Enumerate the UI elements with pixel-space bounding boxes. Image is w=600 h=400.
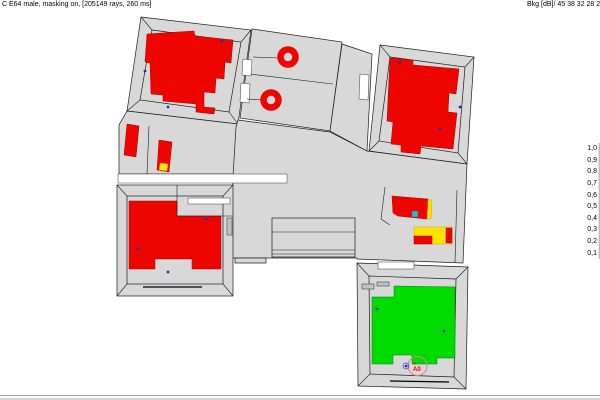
- sti-map-cyan-square: [412, 211, 418, 217]
- scale-label-03: 0,3: [587, 226, 597, 233]
- receiver-dot: [376, 308, 379, 311]
- receiver-dot: [137, 248, 140, 251]
- receiver-dot: [443, 330, 446, 333]
- scale-label-10: 1,0: [587, 145, 597, 152]
- receiver-dot: [167, 106, 170, 109]
- receiver-dot: [439, 128, 442, 131]
- receiver-dot: [405, 365, 408, 368]
- receiver-dot: [399, 62, 402, 65]
- scale-label-09: 0,9: [587, 157, 597, 164]
- sti-map-red-lower-left: [414, 236, 432, 244]
- staircase: [272, 218, 355, 257]
- room-top-right: [369, 45, 474, 164]
- sti-map-red-lower-right: [446, 228, 452, 243]
- scale-label-01: 0,1: [587, 250, 597, 257]
- wing-top-middle: [240, 29, 342, 131]
- scale-label-07: 0,7: [587, 180, 597, 187]
- source-dot: [414, 363, 416, 365]
- receiver-dot: [205, 218, 208, 221]
- catt-mapping-window: C E64 male, masking on, [205149 rays, 26…: [0, 0, 600, 400]
- room-center-left: [117, 185, 233, 296]
- receiver-dot: [144, 70, 147, 73]
- source-label: A0: [413, 367, 421, 373]
- scale-label-08: 0,8: [587, 168, 597, 175]
- receiver-dot: [167, 271, 170, 274]
- corridor-gap: [118, 174, 287, 183]
- sti-map-yellow-booth-2: [159, 163, 168, 171]
- sti-map-yellow-strip: [427, 200, 432, 219]
- scale-label-02: 0,2: [587, 238, 597, 245]
- sti-map-red-room-c: [387, 58, 459, 154]
- sti-map-green-room-b: [372, 286, 455, 364]
- receiver-dot: [459, 106, 462, 109]
- sti-map-red-upper: [392, 196, 428, 219]
- scale-label-06: 0,6: [587, 192, 597, 199]
- floor-plan-canvas: A0: [0, 0, 600, 400]
- scale-label-04: 0,4: [587, 215, 597, 222]
- scale-label-05: 0,5: [587, 203, 597, 210]
- receiver-dot: [221, 40, 224, 43]
